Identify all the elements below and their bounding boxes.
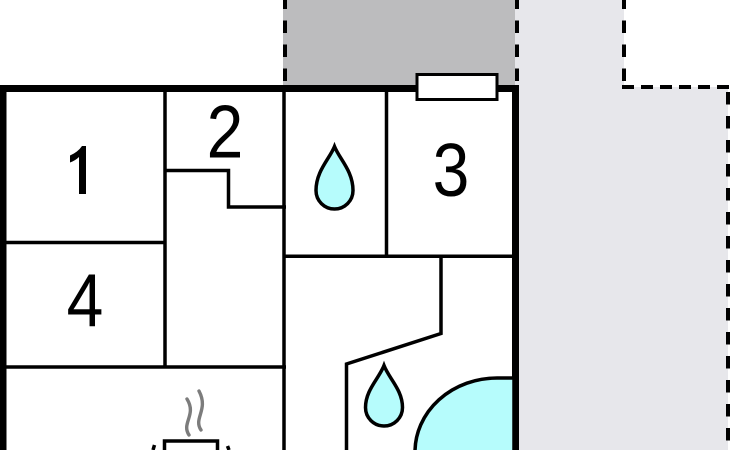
svg-text:3: 3 xyxy=(433,128,470,212)
svg-text:4: 4 xyxy=(67,258,104,342)
svg-text:2: 2 xyxy=(207,90,244,174)
